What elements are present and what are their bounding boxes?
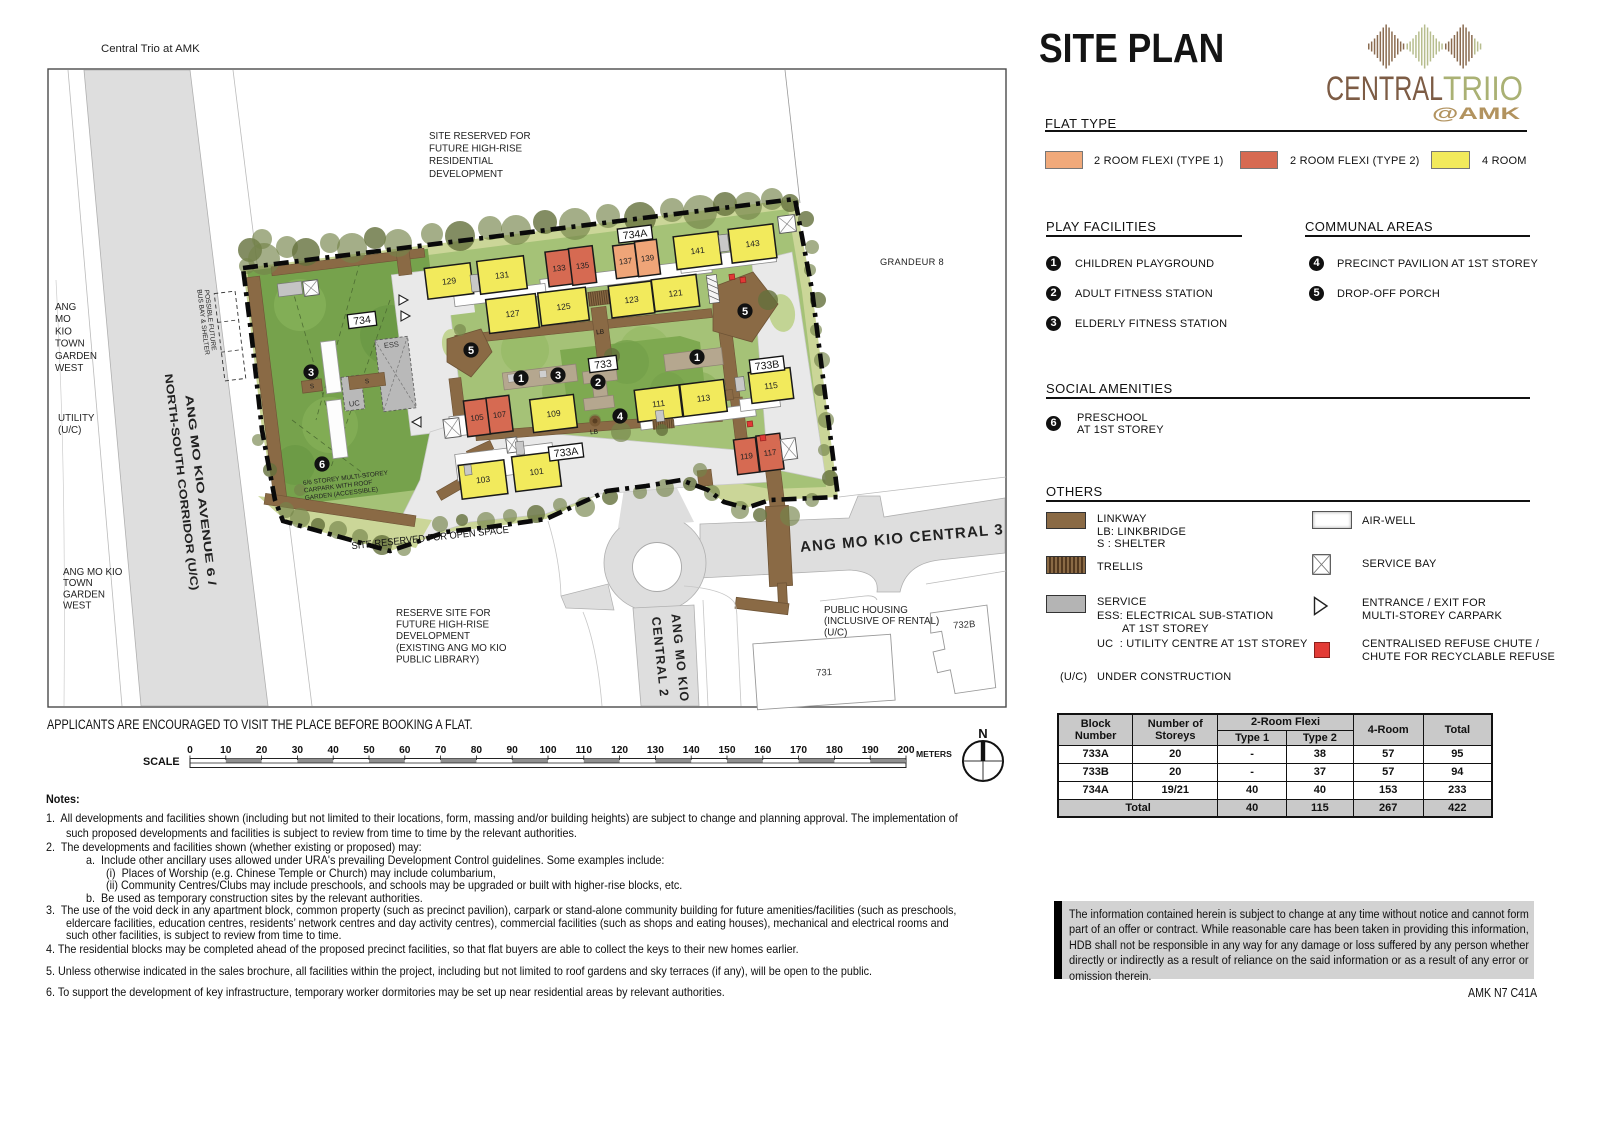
svg-text:110: 110 (576, 745, 593, 756)
svg-text:@AMK: @AMK (1432, 104, 1521, 123)
svg-text:N: N (978, 726, 987, 741)
svg-text:100: 100 (540, 745, 557, 756)
svg-text:90: 90 (507, 745, 519, 756)
svg-text:20: 20 (256, 745, 268, 756)
svg-text:150: 150 (719, 745, 736, 756)
svg-text:CENTRAL: CENTRAL (1326, 70, 1443, 108)
svg-text:70: 70 (435, 745, 447, 756)
svg-text:130: 130 (647, 745, 664, 756)
svg-text:30: 30 (292, 745, 304, 756)
svg-text:50: 50 (363, 745, 375, 756)
svg-text:40: 40 (328, 745, 340, 756)
svg-text:SCALE: SCALE (143, 756, 180, 768)
svg-text:200: 200 (898, 745, 915, 756)
svg-text:140: 140 (683, 745, 700, 756)
svg-text:180: 180 (826, 745, 843, 756)
svg-text:190: 190 (862, 745, 879, 756)
svg-text:160: 160 (754, 745, 771, 756)
svg-text:10: 10 (220, 745, 232, 756)
svg-text:TRIIO: TRIIO (1443, 70, 1523, 108)
svg-text:METERS: METERS (916, 749, 952, 759)
svg-text:80: 80 (471, 745, 483, 756)
svg-text:0: 0 (187, 745, 193, 756)
svg-text:60: 60 (399, 745, 411, 756)
svg-text:120: 120 (611, 745, 628, 756)
svg-text:170: 170 (790, 745, 807, 756)
